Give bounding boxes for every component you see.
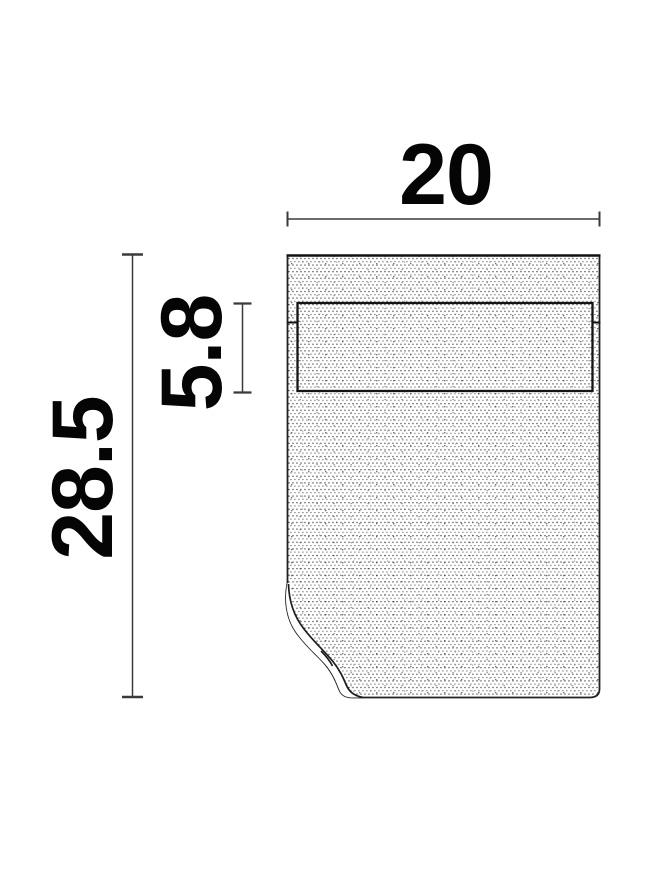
shade-body-fill-overlay [286,256,600,698]
shade-silhouette [286,256,601,698]
dimension-drawing-canvas: 20 28.5 5.8 [0,0,667,879]
width-dimension-label: 20 [399,132,493,218]
inner-height-dimension-label: 5.8 [149,295,235,412]
height-dimension-label: 28.5 [40,396,126,559]
